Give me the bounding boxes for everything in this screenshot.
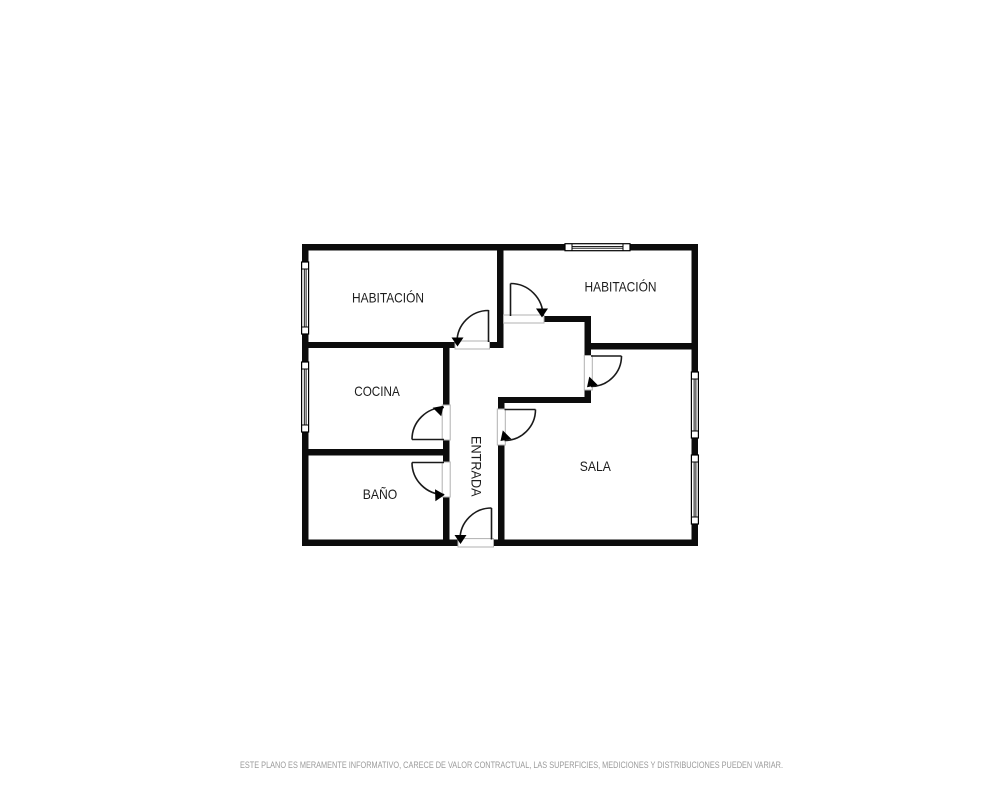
- svg-text:ENTRADA: ENTRADA: [469, 436, 484, 497]
- svg-text:SALA: SALA: [580, 459, 612, 474]
- svg-text:HABITACIÓN: HABITACIÓN: [352, 291, 424, 306]
- svg-text:ESTE PLANO ES MERAMENTE INFORM: ESTE PLANO ES MERAMENTE INFORMATIVO, CAR…: [240, 760, 783, 771]
- svg-text:COCINA: COCINA: [354, 384, 400, 399]
- svg-text:HABITACIÓN: HABITACIÓN: [585, 280, 657, 295]
- svg-text:BAÑO: BAÑO: [363, 487, 398, 502]
